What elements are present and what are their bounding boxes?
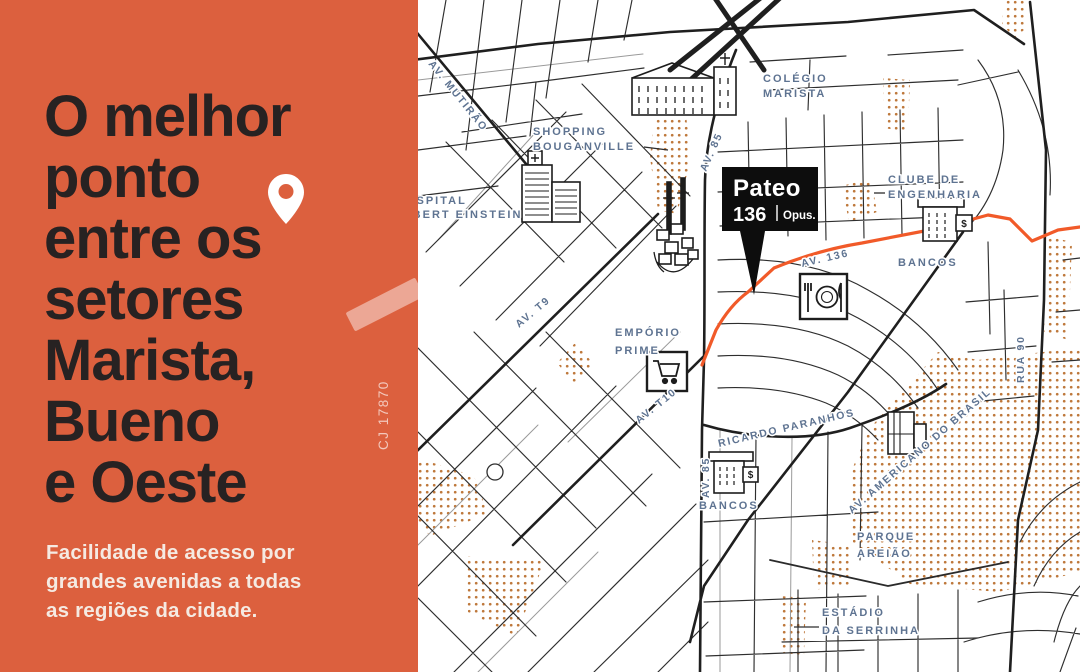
- bank-dollar-sign: $: [748, 470, 754, 481]
- stipple-area: [780, 596, 806, 656]
- city-map: $ $: [418, 0, 1080, 672]
- headline-line: ponto: [44, 147, 291, 208]
- label-estadio-line1: ESTÁDIO: [822, 606, 885, 619]
- label-parque-line2: AREIÃO: [857, 547, 912, 560]
- headline-line: Marista,: [44, 330, 291, 391]
- subtitle: Facilidade de acesso por grandes avenida…: [46, 538, 301, 625]
- headline-line: e Oeste: [44, 452, 291, 513]
- stipple-area: [842, 178, 877, 222]
- marker-number: 136: [733, 204, 766, 226]
- stipple-area: [1044, 236, 1072, 340]
- label-emporio-line1: EMPÓRIO: [615, 326, 681, 339]
- label-ricardo-paranhos: RICARDO PARANHOS: [717, 407, 856, 450]
- bank-icon-top: $: [918, 198, 972, 241]
- subtitle-line: as regiões da cidade.: [46, 596, 301, 625]
- label-bancos-bottom: BANCOS: [699, 500, 759, 512]
- label-shopping-line1: SHOPPING: [533, 126, 607, 138]
- label-rua-90: RUA 90: [1015, 335, 1027, 383]
- label-clube-line2: ENGENHARIA: [888, 189, 982, 201]
- left-panel: O melhor ponto entre os setores Marista,…: [0, 0, 418, 672]
- stipple-area: [812, 540, 851, 590]
- label-emporio-line2: PRIME: [615, 345, 660, 357]
- headline-line: setores: [44, 269, 291, 330]
- map-pin-icon: [268, 174, 304, 224]
- label-hospital-line2: ALBERT EINSTEIN: [418, 209, 522, 221]
- bank-dollar-sign: $: [961, 219, 967, 230]
- shopping-cart-icon: [647, 352, 687, 391]
- label-shopping-line2: BOUGANVILLE: [533, 141, 635, 153]
- label-colegio-line1: COLÉGIO: [763, 72, 828, 85]
- label-av-85-bottom: AV. 85: [700, 457, 712, 498]
- marker-pointer: [740, 231, 765, 295]
- label-av-mutirao: AV. MUTIRÃO: [426, 58, 491, 134]
- label-colegio-line2: MARISTA: [763, 88, 826, 100]
- headline-line: Bueno: [44, 391, 291, 452]
- headline-line: O melhor: [44, 86, 291, 147]
- subtitle-line: grandes avenidas a todas: [46, 567, 301, 596]
- stipple-area: [883, 78, 910, 132]
- headline-line: entre os: [44, 208, 291, 269]
- hospital-building-icon: [522, 151, 580, 222]
- colegio-marista-building-icon: [632, 53, 736, 115]
- marker-name: Pateo: [733, 175, 801, 202]
- watermark-code: CJ 17870: [376, 340, 391, 450]
- label-estadio-line2: DA SERRINHA: [822, 625, 920, 637]
- label-hospital-line1: HOSPITAL: [418, 195, 467, 207]
- bank-icon-bottom: $: [709, 452, 758, 493]
- subtitle-line: Facilidade de acesso por: [46, 538, 301, 567]
- label-bancos-top: BANCOS: [898, 257, 958, 269]
- decor-stripe: [345, 277, 418, 331]
- roundabout: [487, 464, 503, 480]
- label-clube-line1: CLUBE DE: [888, 174, 960, 186]
- label-parque-line1: PARQUE: [857, 531, 915, 543]
- stipple-areas: [418, 0, 1080, 656]
- stipple-area: [464, 556, 545, 636]
- marker-brand: Opus.: [783, 210, 816, 222]
- restaurant-icon: [800, 274, 847, 319]
- stipple-area: [418, 458, 488, 536]
- promo-layout: O melhor ponto entre os setores Marista,…: [0, 0, 1080, 672]
- headline: O melhor ponto entre os setores Marista,…: [44, 86, 291, 513]
